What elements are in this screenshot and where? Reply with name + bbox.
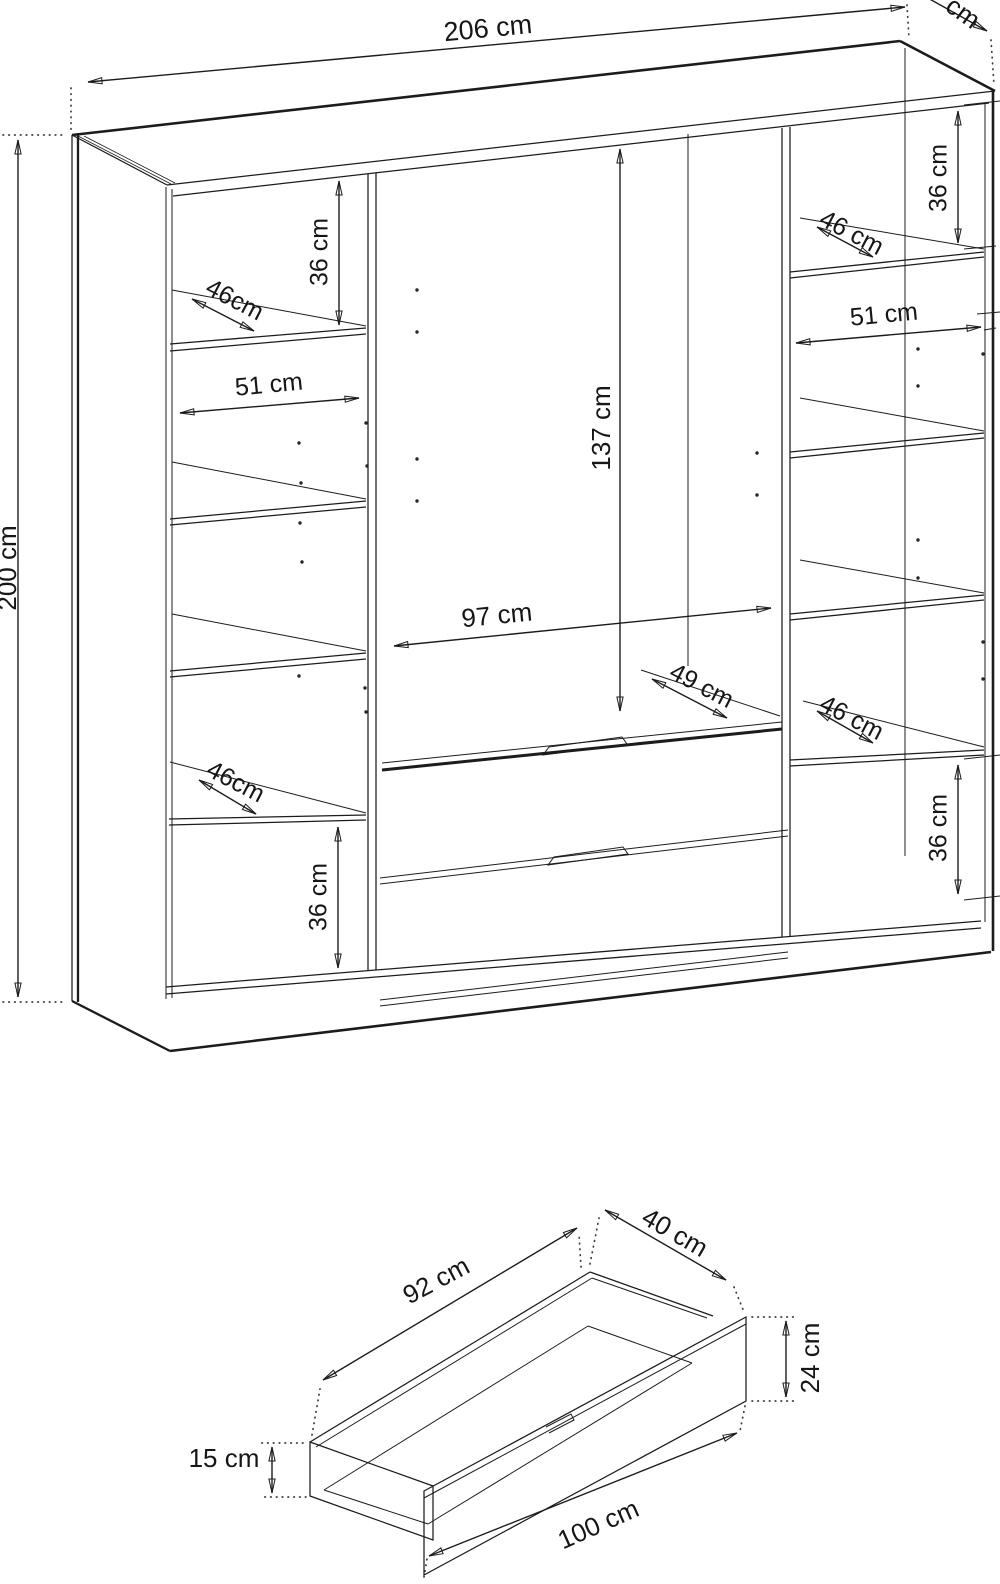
right-bottom-gap-label: 36 cm bbox=[925, 794, 953, 862]
diagram-canvas: 206 cm cm 200 cm 137 cm 97 cm 49 c bbox=[0, 0, 1000, 1584]
dimension-right-shelf-width: 51 cm bbox=[796, 297, 1000, 343]
dimension-drawer-inner-width: 92 cm bbox=[312, 1228, 581, 1435]
left-top-shelf-depth-label: 46cm bbox=[201, 273, 268, 326]
pin-hole-dots bbox=[297, 288, 984, 713]
dimension-left-shelf-width: 51 cm bbox=[180, 367, 359, 413]
left-top-gap-label: 36 cm bbox=[306, 218, 334, 286]
dimension-left-top-shelf-depth: 46cm bbox=[192, 273, 268, 331]
wardrobe-depth-label: cm bbox=[940, 0, 986, 35]
right-top-gap-label: 36 cm bbox=[925, 144, 953, 212]
hanging-height-label: 137 cm bbox=[586, 385, 616, 470]
wardrobe-carcass bbox=[72, 41, 995, 1051]
dimension-drawer-depth: 40 cm bbox=[590, 1201, 744, 1312]
dimension-left-bottom-gap: 36 cm bbox=[305, 827, 338, 968]
drawer-side-height-label: 15 cm bbox=[189, 1443, 260, 1473]
drawer-inner-width-label: 92 cm bbox=[398, 1250, 475, 1310]
wardrobe-height-label: 200 cm bbox=[0, 525, 22, 610]
right-bottom-shelf-depth-label: 46 cm bbox=[815, 690, 888, 746]
hanging-width-label: 97 cm bbox=[460, 597, 533, 634]
dimension-overall-height: 200 cm bbox=[0, 135, 63, 1002]
right-top-shelf-depth-label: 46 cm bbox=[815, 205, 888, 261]
dimension-overall-width: 206 cm bbox=[71, 5, 909, 130]
drawer-front-height-label: 24 cm bbox=[795, 1323, 825, 1394]
right-shelf-width-label: 51 cm bbox=[849, 297, 919, 331]
wardrobe-width-label: 206 cm bbox=[442, 9, 533, 47]
left-shelf-width-label: 51 cm bbox=[234, 367, 304, 401]
drawer-depth-label: 40 cm bbox=[637, 1201, 713, 1262]
dimension-drawer-outer-width: 100 cm bbox=[424, 1406, 745, 1577]
dimension-left-bottom-shelf-depth: 46cm bbox=[199, 755, 269, 814]
drawer-handle-slot bbox=[548, 847, 628, 865]
dimension-hanging-width: 97 cm bbox=[394, 597, 771, 646]
dimension-drawer-side-height: 15 cm bbox=[189, 1443, 306, 1497]
wardrobe-drawers bbox=[380, 670, 788, 1006]
drawer-isometric-diagram: 92 cm 40 cm 24 cm 15 cm 100 bbox=[189, 1201, 825, 1577]
drawer-box bbox=[310, 1272, 746, 1575]
wardrobe-front-diagram: 206 cm cm 200 cm 137 cm 97 cm 49 c bbox=[0, 0, 1000, 1051]
furniture-dimension-sheet: 206 cm cm 200 cm 137 cm 97 cm 49 c bbox=[0, 0, 1000, 1584]
dimension-drawer-front-height: 24 cm bbox=[752, 1317, 825, 1401]
dimension-right-top-gap: 36 cm bbox=[925, 101, 1000, 249]
dimension-right-top-shelf-depth: 46 cm bbox=[815, 205, 888, 261]
dimension-left-top-gap: 36 cm bbox=[306, 181, 339, 325]
dimension-right-bottom-gap: 36 cm bbox=[925, 755, 1000, 900]
drawer-outer-width-label: 100 cm bbox=[553, 1493, 643, 1555]
left-bottom-shelf-depth-label: 46cm bbox=[202, 755, 269, 808]
left-bottom-gap-label: 36 cm bbox=[305, 863, 333, 931]
dimension-drawer-top-depth: 49 cm bbox=[652, 658, 738, 718]
dimension-right-bottom-shelf-depth: 46 cm bbox=[815, 690, 888, 746]
